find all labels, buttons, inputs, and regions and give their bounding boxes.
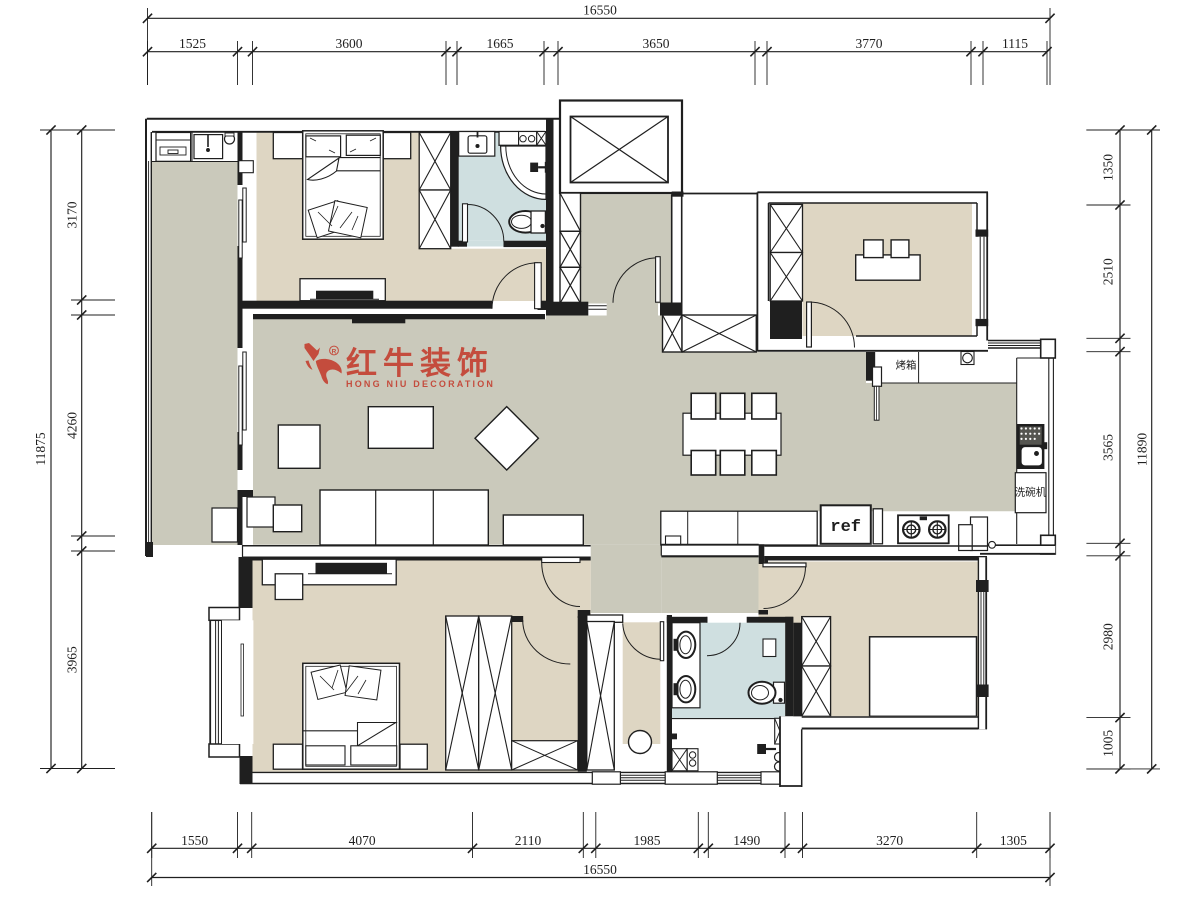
svg-text:11890: 11890 — [1135, 433, 1150, 466]
svg-text:3770: 3770 — [856, 36, 883, 51]
svg-text:16550: 16550 — [583, 862, 617, 877]
svg-text:1115: 1115 — [1002, 36, 1028, 51]
svg-text:1305: 1305 — [1000, 833, 1027, 848]
svg-text:3965: 3965 — [65, 646, 80, 673]
svg-text:1005: 1005 — [1101, 730, 1116, 757]
svg-text:3270: 3270 — [876, 833, 903, 848]
svg-text:1525: 1525 — [179, 36, 206, 51]
svg-text:洗碗机: 洗碗机 — [1015, 486, 1047, 499]
svg-text:1985: 1985 — [634, 833, 661, 848]
svg-text:3170: 3170 — [65, 201, 80, 228]
svg-text:烤箱: 烤箱 — [896, 359, 917, 372]
svg-text:11875: 11875 — [33, 432, 48, 465]
svg-text:4260: 4260 — [65, 412, 80, 439]
svg-text:2510: 2510 — [1101, 258, 1116, 285]
svg-text:16550: 16550 — [583, 3, 617, 18]
svg-text:2980: 2980 — [1101, 623, 1116, 650]
svg-text:R: R — [332, 348, 337, 355]
svg-text:1665: 1665 — [487, 36, 514, 51]
svg-text:3650: 3650 — [643, 36, 670, 51]
svg-text:ref: ref — [830, 518, 861, 537]
svg-text:红牛装饰: 红牛装饰 — [346, 346, 494, 381]
svg-text:1350: 1350 — [1101, 154, 1116, 181]
svg-text:1490: 1490 — [733, 833, 760, 848]
svg-text:3565: 3565 — [1101, 434, 1116, 461]
svg-text:2110: 2110 — [515, 833, 542, 848]
svg-text:HONG NIU DECORATION: HONG NIU DECORATION — [346, 379, 495, 389]
svg-text:1550: 1550 — [181, 833, 208, 848]
svg-text:3600: 3600 — [336, 36, 363, 51]
svg-text:4070: 4070 — [349, 833, 376, 848]
